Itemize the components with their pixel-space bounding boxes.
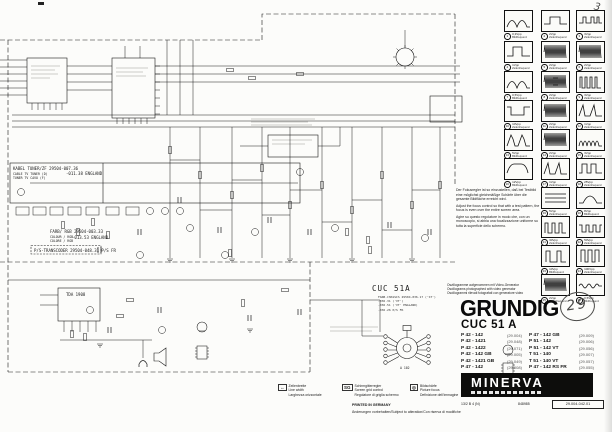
model-row: P 47 - 142 RS FR (29.055) xyxy=(529,365,601,371)
model-number: (29.049) xyxy=(507,359,522,364)
oscillogram-frequency: Zeilenfrequenz xyxy=(549,36,567,39)
model-name: P 42 - 142 GB xyxy=(461,352,492,357)
scan-page-edge xyxy=(604,0,612,432)
schematic-sheet: KABEL TUNER/ZF 29504-007.36 -011.38 ENGL… xyxy=(0,0,612,432)
oscillogram: 18 25Vpp Zeilenfrequenz xyxy=(576,158,604,188)
model-name: P 51 - 142 VT xyxy=(529,346,559,351)
oscilloscope-trace xyxy=(576,187,605,209)
oscilloscope-trace xyxy=(504,41,533,63)
model-name: P 47 - 142 xyxy=(461,365,483,370)
oscilloscope-trace xyxy=(504,100,533,122)
footer-number: 848985 xyxy=(518,402,530,407)
oscillogram: 16 12Vpp Bildfrequenz xyxy=(504,158,532,188)
oscilloscope-trace xyxy=(541,216,570,238)
model-name: P 42 - 1421 GB xyxy=(461,359,494,364)
alterations-note: Änderungen vorbehalten/Subject to altera… xyxy=(352,410,461,415)
model-name: P 47 - 142 GB xyxy=(529,333,560,338)
oscilloscope-trace xyxy=(576,10,605,32)
model-number: (29.006) xyxy=(579,339,594,344)
oscillogram-number: 3 xyxy=(576,33,583,40)
model-number: (29.071) xyxy=(507,346,522,351)
model-row: P 47 - 142 (29.008) xyxy=(461,365,527,371)
oscilloscope-trace xyxy=(541,245,570,267)
model-number: (29.009) xyxy=(579,333,594,338)
oscillogram: 11 2Vpp Zeilenfrequenz xyxy=(541,100,569,130)
focus-icon: ◎ xyxy=(410,384,418,391)
oscillogram: 6 2Vpp Zeilenfrequenz xyxy=(576,41,604,71)
model-name: T 51 - 140 VT xyxy=(529,359,558,364)
line-width-icon: ↔ xyxy=(278,384,287,391)
oscilloscope-trace xyxy=(504,10,533,32)
oscilloscope-trace xyxy=(504,158,533,180)
oscilloscope-trace xyxy=(504,71,533,93)
oscillogram-frequency: Zeilenfrequenz xyxy=(512,67,530,70)
oscilloscope-trace xyxy=(541,10,570,32)
legend-item: SG Schirmgitterregler Screen grid contro… xyxy=(342,384,399,397)
oscillogram: 4 1Vpp Zeilenfrequenz xyxy=(504,41,532,71)
oscilloscope-trace xyxy=(576,216,605,238)
oscilloscope-trace xyxy=(576,129,605,151)
oscilloscope-trace xyxy=(541,158,570,180)
model-number: (29.007) xyxy=(579,352,594,357)
model-number: (29.055) xyxy=(579,365,594,370)
oscillogram: 21 30Vpp Zeilenfrequenz xyxy=(541,216,569,246)
oscillogram: 12 1Vpp Zeilenfrequenz xyxy=(576,100,604,130)
oscillogram-frequency: Bildfrequenz xyxy=(512,36,527,39)
model-number: (29.004) xyxy=(507,333,522,338)
model-name: P 47 - 142 RS FR xyxy=(529,365,567,370)
oscilloscope-trace xyxy=(541,129,570,151)
oscillogram-number: 1 xyxy=(504,33,511,40)
oscilloscope-trace xyxy=(504,129,533,151)
footer-doc-number: 29.004-042.01 xyxy=(552,400,604,409)
registration-mark xyxy=(38,2,44,5)
oscilloscope-trace xyxy=(576,100,605,122)
oscillogram: 19 5Vpp Zeilenfrequenz xyxy=(541,187,569,217)
oscillogram-number: 4 xyxy=(504,64,511,71)
legend-item: ◎ Bildschärfe Picture focus Definizione … xyxy=(410,384,458,397)
model-number: (29.008) xyxy=(507,365,522,370)
model-name: P 51 - 142 xyxy=(529,339,551,344)
oscillogram: 20 8Vpp Bildfrequenz xyxy=(576,187,604,217)
oscillogram-frequency: Zeilenfrequenz xyxy=(549,67,567,70)
oscillogram: 7 0,5Vpp Bildfrequenz xyxy=(504,71,532,101)
oscilloscope-trace xyxy=(541,41,570,63)
oscillogram: 14 2Vpp Zeilenfrequenz xyxy=(541,129,569,159)
oscilloscope-trace xyxy=(541,100,570,122)
oscillogram-number: 16 xyxy=(504,181,511,188)
oscillogram: 8 2Vpp Zeilenfrequenz xyxy=(541,71,569,101)
model-name: P 42 - 142 xyxy=(461,333,483,338)
model-table-left: P 42 - 142 (29.004) P 42 - 1421 (29.048)… xyxy=(461,333,527,371)
chassis-name: CUC 51 A xyxy=(461,319,517,331)
oscillogram: 1 0,3Vpp Bildfrequenz xyxy=(504,10,532,40)
oscilloscope-trace xyxy=(576,41,605,63)
oscillogram: 24 100Vpp Zeilenfrequenz xyxy=(576,245,604,275)
oscillogram-frequency: Bildfrequenz xyxy=(512,184,527,187)
legend-item: ↔ Zeilenbreite Line width Larghezza oriz… xyxy=(278,384,322,397)
model-number: (29.057) xyxy=(579,359,594,364)
oscillogram: 23 10Vpp Bildfrequenz xyxy=(541,245,569,275)
oscilloscope-trace xyxy=(576,245,605,267)
model-number: (29.005) xyxy=(507,352,522,357)
oscilloscope-trace xyxy=(576,71,605,93)
adjustment-legend: ↔ Zeilenbreite Line width Larghezza oriz… xyxy=(278,384,488,400)
model-number: (29.048) xyxy=(507,339,522,344)
oscillogram-number: 6 xyxy=(576,64,583,71)
oscillogram: 5 2Vpp Zeilenfrequenz xyxy=(541,41,569,71)
oscillogram: 9 3Vpp Zeilenfrequenz xyxy=(576,71,604,101)
model-name: T 51 - 140 xyxy=(529,352,551,357)
grundig-logo: GRUNDIG xyxy=(460,295,559,322)
oscillogram: 3 3Vpp Zeilenfrequenz xyxy=(576,10,604,40)
oscilloscope-trace xyxy=(541,71,570,93)
oscilloscope-trace xyxy=(576,158,605,180)
oscilloscope-trace xyxy=(541,187,570,209)
model-table-right: P 47 - 142 GB (29.009) P 51 - 142 (29.00… xyxy=(529,333,601,371)
oscillogram-frequency: Zeilenfrequenz xyxy=(584,67,602,70)
screen-grid-icon: SG xyxy=(342,384,353,391)
footer-left: 13/2 B 4 (N) xyxy=(461,402,480,407)
oscillogram-number: 2 xyxy=(541,33,548,40)
oscillogram: 15 3Vpp Zeilenfrequenz xyxy=(576,129,604,159)
oscillogram-frequency: Zeilenfrequenz xyxy=(584,36,602,39)
oscillogram: 17 1Vpp Zeilenfrequenz xyxy=(541,158,569,188)
oscillogram-number: 5 xyxy=(541,64,548,71)
printed-in-germany: PRINTED IN GERMANY xyxy=(352,403,391,408)
oscillogram: 22 50Vpp Zeilenfrequenz xyxy=(576,216,604,246)
oscillogram: 13 5Vpp Bildfrequenz xyxy=(504,129,532,159)
model-name: P 42 - 1421 xyxy=(461,339,486,344)
oscillogram: 2 2Vpp Zeilenfrequenz xyxy=(541,10,569,40)
oscillogram: 10 10Vpp Zeilenfrequenz xyxy=(504,100,532,130)
model-number: (29.056) xyxy=(579,346,594,351)
model-name: P 42 - 1422 xyxy=(461,346,486,351)
